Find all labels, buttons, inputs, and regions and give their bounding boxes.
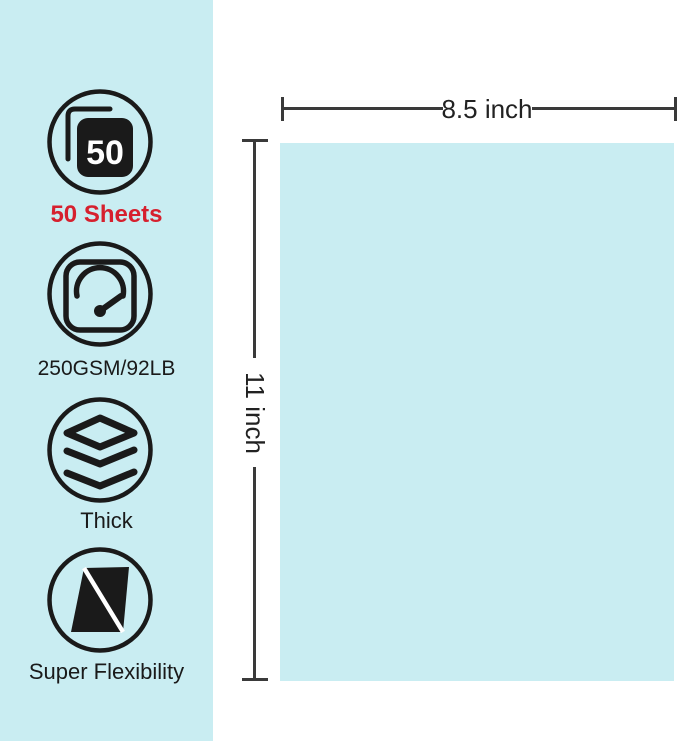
feature-label-sheets: 50 Sheets bbox=[0, 202, 213, 228]
feature-label-flexibility: Super Flexibility bbox=[0, 660, 213, 684]
sheet-count-badge: 50 bbox=[86, 134, 124, 172]
feature-label-weight: 250GSM/92LB bbox=[0, 357, 213, 380]
feature-sidebar: 50 50 Sheets 250GSM/92LB Thick bbox=[0, 0, 213, 741]
flexibility-icon bbox=[45, 545, 155, 655]
sheets-count-icon: 50 bbox=[45, 87, 155, 197]
width-dimension-tick-right bbox=[674, 97, 677, 121]
height-dimension-tick-bottom bbox=[242, 678, 268, 681]
width-dimension-label: 8.5 inch bbox=[425, 94, 549, 125]
height-dimension-line-bottom bbox=[253, 467, 256, 680]
product-infographic: 50 50 Sheets 250GSM/92LB Thick bbox=[0, 0, 679, 741]
height-dimension-label: 11 inch bbox=[241, 363, 269, 463]
feature-label-thick: Thick bbox=[0, 509, 213, 533]
width-dimension-tick-left bbox=[281, 97, 284, 121]
height-dimension-line-top bbox=[253, 141, 256, 358]
width-dimension-line-left bbox=[282, 107, 443, 110]
layers-icon bbox=[45, 395, 155, 505]
gauge-icon bbox=[45, 239, 155, 349]
height-dimension-tick-top bbox=[242, 139, 268, 142]
paper-sheet bbox=[280, 143, 674, 681]
width-dimension-line-right bbox=[532, 107, 677, 110]
